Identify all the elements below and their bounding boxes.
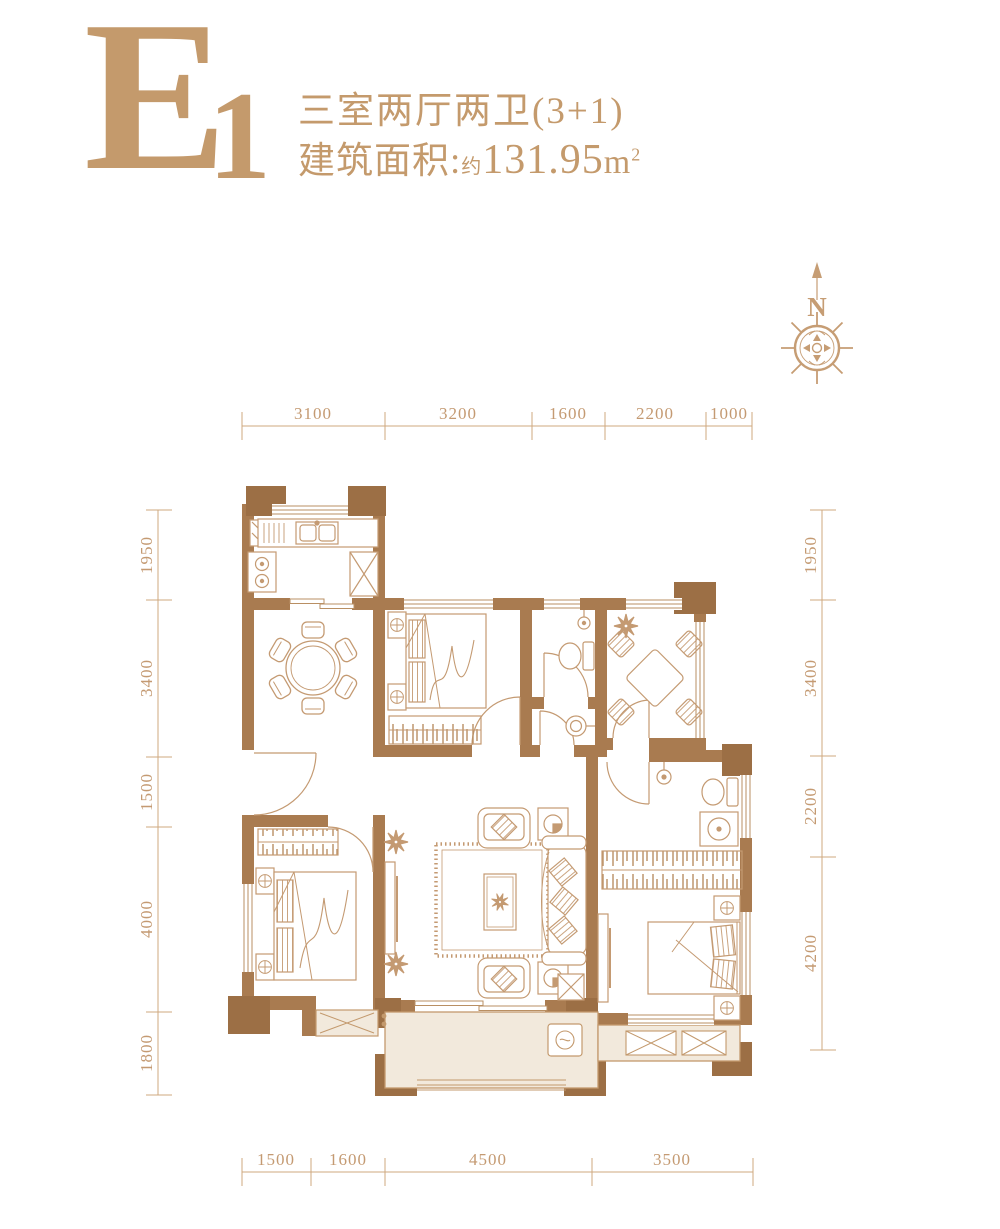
wardrobe (258, 829, 338, 855)
svg-text:2200: 2200 (801, 787, 820, 825)
armchair-top (478, 808, 530, 848)
sink (296, 521, 338, 544)
plan-code-sub: 1 (208, 74, 271, 200)
svg-text:1500: 1500 (257, 1150, 295, 1169)
tv-wall-living (384, 830, 408, 976)
master-balcony (598, 1025, 740, 1061)
svg-text:1950: 1950 (137, 536, 156, 574)
svg-text:4000: 4000 (137, 900, 156, 938)
leisure-room (607, 614, 703, 726)
svg-text:3400: 3400 (137, 659, 156, 697)
svg-text:3500: 3500 (653, 1150, 691, 1169)
area-unit: m2 (604, 144, 641, 181)
area-line: 建筑面积:约131.95m2 (298, 130, 641, 184)
svg-text:1000: 1000 (710, 404, 748, 423)
dim-top: 3100 3200 1600 2200 1000 (242, 404, 752, 440)
armchair-bottom (478, 958, 530, 998)
sink (700, 812, 738, 846)
svg-text:3400: 3400 (801, 659, 820, 697)
svg-text:1600: 1600 (329, 1150, 367, 1169)
shared-bathroom (559, 610, 595, 736)
svg-text:1500: 1500 (137, 773, 156, 811)
wardrobe (389, 716, 481, 744)
svg-text:4200: 4200 (801, 934, 820, 972)
dim-right: 1950 3400 2200 4200 (801, 510, 836, 1050)
cooktop (248, 552, 276, 592)
wash-basin (566, 716, 595, 736)
floorplan-page: E 1 三室两厅两卫(3+1) 建筑面积:约131.95m2 (0, 0, 1000, 1229)
compass-wheel (781, 312, 853, 384)
dining-table (286, 641, 340, 695)
coffee-table (484, 874, 516, 930)
compass-icon: N (781, 262, 853, 384)
toilet (559, 642, 594, 670)
svg-text:2200: 2200 (636, 404, 674, 423)
svg-text:4500: 4500 (469, 1150, 507, 1169)
dim-left: 1950 3400 1500 4000 1800 (137, 510, 172, 1095)
svg-text:1600: 1600 (549, 404, 587, 423)
bedroom2-furniture (256, 829, 356, 980)
wardrobe (602, 851, 742, 889)
master-door (607, 762, 649, 804)
bed (274, 872, 356, 980)
bedroom1-furniture (388, 612, 486, 744)
area-value: 131.95 (482, 137, 604, 183)
master-bedroom (598, 896, 740, 1020)
dim-bottom: 1500 1600 4500 3500 (242, 1150, 753, 1186)
master-bathroom (602, 762, 742, 889)
layout-description: 三室两厅两卫(3+1) (298, 80, 625, 134)
kitchen-furniture (248, 519, 378, 596)
bed (406, 614, 486, 708)
corner-cabinet (558, 974, 584, 1000)
sofa (542, 836, 587, 965)
living-room (436, 808, 586, 1000)
fridge (350, 552, 378, 596)
toilet (702, 778, 738, 806)
svg-text:3100: 3100 (294, 404, 332, 423)
bed (648, 922, 740, 994)
svg-text:1950: 1950 (801, 536, 820, 574)
dining-set (268, 622, 359, 714)
leisure-table (625, 648, 684, 707)
entry-door (254, 753, 316, 815)
area-label: 建筑面积: (298, 141, 461, 182)
side-table-top (538, 808, 568, 840)
washing-machine (548, 1024, 582, 1056)
svg-text:1800: 1800 (137, 1034, 156, 1072)
svg-text:3200: 3200 (439, 404, 477, 423)
main-balcony (316, 1010, 598, 1090)
area-approx: 约 (461, 156, 482, 178)
plan-code: E (84, 0, 227, 203)
